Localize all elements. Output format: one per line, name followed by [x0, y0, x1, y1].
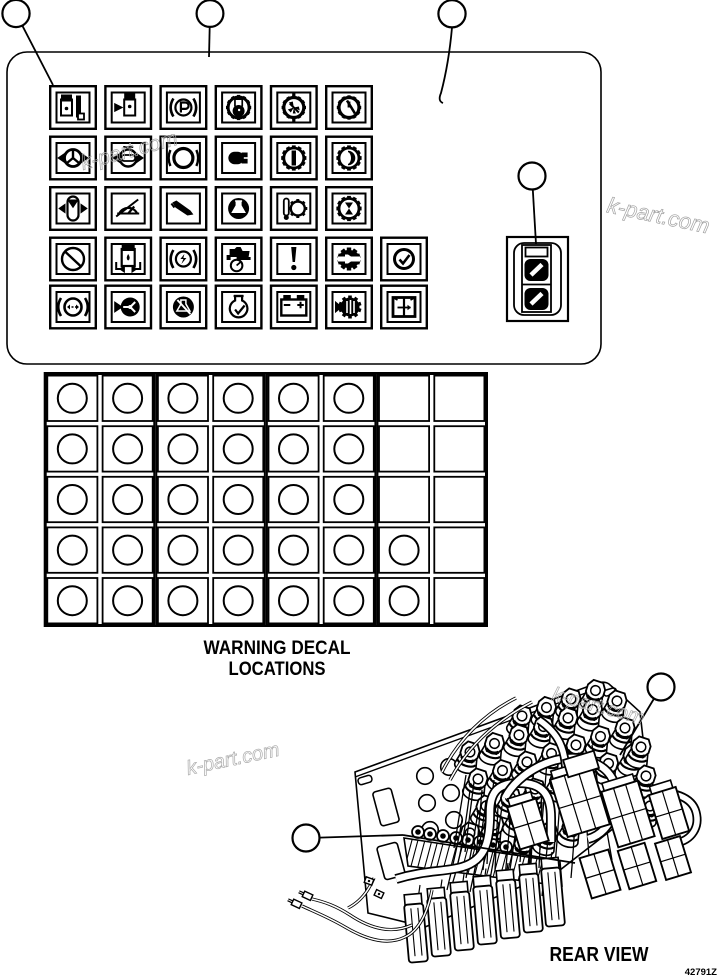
svg-text:42791Z: 42791Z: [685, 967, 717, 975]
svg-text:REAR VIEW: REAR VIEW: [550, 944, 649, 966]
svg-text:WARNING DECAL: WARNING DECAL: [204, 637, 351, 659]
svg-text:k-part.com: k-part.com: [605, 192, 712, 238]
svg-text:LOCATIONS: LOCATIONS: [229, 658, 326, 680]
svg-text:k-part.com: k-part.com: [184, 739, 281, 780]
